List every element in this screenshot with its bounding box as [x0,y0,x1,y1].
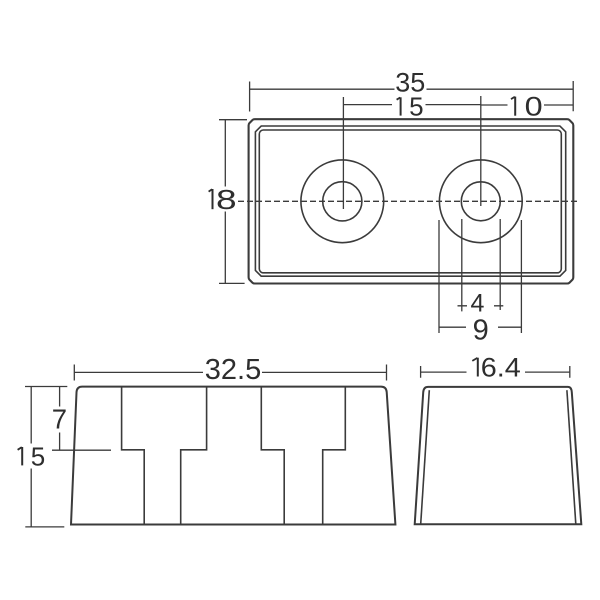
svg-text:0: 0 [525,92,543,122]
svg-text:8: 8 [216,184,237,215]
svg-text:6.4: 6.4 [481,353,521,383]
svg-text:32.5: 32.5 [205,354,261,386]
svg-text:9: 9 [473,314,489,346]
svg-text:7: 7 [52,404,67,435]
svg-text:5: 5 [409,92,423,122]
svg-text:5: 5 [31,441,45,471]
svg-text:4: 4 [471,290,485,318]
